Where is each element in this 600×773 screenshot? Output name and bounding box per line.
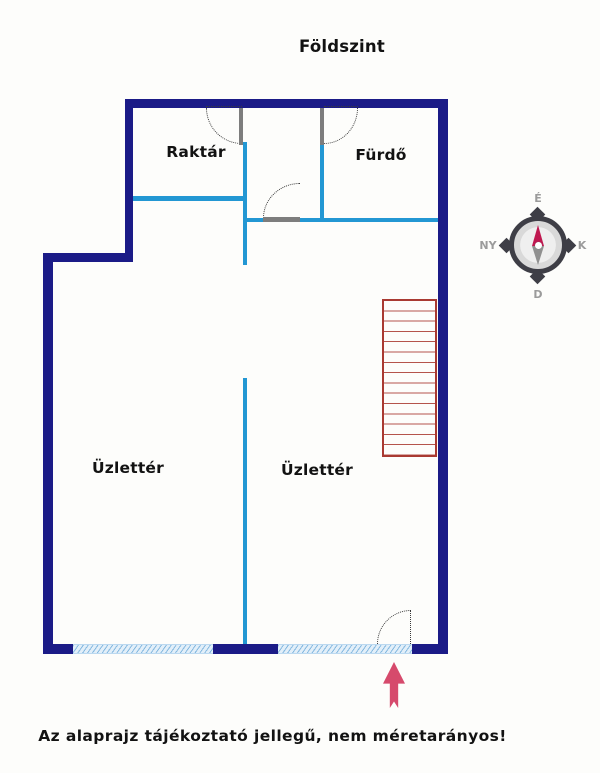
- door-lintel-raktar: [206, 106, 242, 107]
- outer-wall-step: [43, 253, 133, 262]
- inner-wall-hall-bottom-a: [247, 218, 263, 222]
- door-arc-raktar: [206, 108, 242, 144]
- entrance-arrow-icon: [383, 662, 405, 708]
- room-label-uzletter-left: Üzlettér: [68, 459, 188, 477]
- inner-wall-raktar-bottom: [133, 196, 247, 201]
- inner-wall-middle-lower: [243, 378, 247, 644]
- room-label-raktar: Raktár: [140, 143, 252, 161]
- outer-wall-right: [438, 99, 448, 654]
- room-label-furdo: Fürdő: [330, 146, 432, 164]
- compass-label-west: NY: [475, 239, 501, 252]
- stairs: [382, 299, 437, 457]
- window-right: [278, 644, 412, 654]
- compass-label-south: D: [531, 288, 545, 301]
- outer-wall-top: [125, 99, 448, 108]
- floor-plan: Földszint Raktár Fürdő Üzlettér Üzlettér…: [0, 0, 600, 773]
- window-left: [73, 644, 213, 654]
- compass-hub-icon: [535, 242, 542, 249]
- door-arc-furdo: [324, 108, 358, 144]
- room-label-uzletter-right: Üzlettér: [257, 461, 377, 479]
- door-arc-hall: [263, 183, 300, 218]
- page-title: Földszint: [242, 37, 442, 56]
- inner-wall-furdo-left: [320, 142, 324, 218]
- outer-wall-left-upper: [125, 99, 133, 262]
- door-leaf-furdo: [320, 108, 324, 145]
- compass-label-north: É: [531, 192, 545, 205]
- footnote: Az alaprajz tájékoztató jellegű, nem mér…: [0, 727, 545, 745]
- outer-wall-left-lower: [43, 253, 53, 654]
- door-arc-entrance: [377, 610, 411, 644]
- inner-wall-hall-bottom-b: [300, 218, 438, 222]
- door-lintel-furdo: [324, 106, 358, 107]
- door-leaf-hall: [263, 217, 300, 222]
- compass-label-east: K: [575, 239, 589, 252]
- door-leaf-raktar: [239, 108, 243, 145]
- compass-rose: É D NY K: [475, 192, 600, 302]
